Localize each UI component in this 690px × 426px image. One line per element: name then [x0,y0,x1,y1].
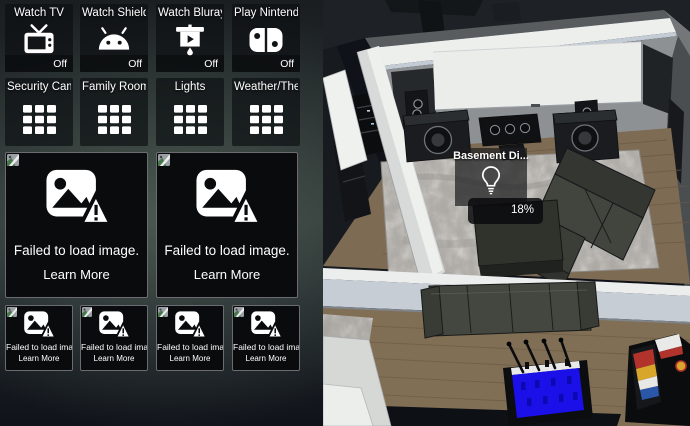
light-name: Basement Di... [441,150,541,162]
grid-icon [80,98,148,140]
learn-more-link[interactable]: Learn More [233,354,299,363]
failed-message: Failed to load image. [6,243,147,258]
image-error-icon [6,167,147,231]
tile-group-weather[interactable]: Weather/The... [232,78,300,146]
status-bar: Off [156,55,224,72]
status-text: Off [53,58,67,70]
image-error-icon [81,310,147,341]
floorplan-3d-view[interactable]: Basement Di... 18% [323,0,690,426]
status-text: Off [280,58,294,70]
status-text: Off [204,58,218,70]
failed-message: Failed to load image. [157,342,223,352]
lightbulb-icon[interactable] [479,165,503,196]
learn-more-link[interactable]: Learn More [157,267,297,282]
tile-watch-bluray[interactable]: Watch Bluray... Off [156,4,224,72]
tile-camera-feed-failed[interactable]: Failed to load image. Learn More [232,305,300,371]
status-text: Off [128,58,142,70]
failed-message: Failed to load image. [233,342,299,352]
tile-camera-feed-failed[interactable]: Failed to load image. Learn More [156,152,298,298]
failed-message: Failed to load image. [6,342,72,352]
image-error-icon [157,167,297,231]
grid-icon [5,98,73,140]
tile-camera-feed-failed[interactable]: Failed to load image. Learn More [156,305,224,371]
dimmer-slider[interactable]: 18% [468,198,543,224]
tile-play-nintendo[interactable]: Play Nintend... Off [232,4,300,72]
tile-camera-feed-failed[interactable]: Failed to load image. Learn More [5,305,73,371]
broken-image-icon [158,154,170,166]
smart-home-dashboard: Watch TV Off Watch Shield... Off Watch B… [0,0,690,426]
status-bar: Off [232,55,300,72]
projector-screen-icon [156,24,224,55]
broken-image-icon [7,154,19,166]
grid-icon [156,98,224,140]
learn-more-link[interactable]: Learn More [6,354,72,363]
tile-title: Watch TV [7,7,71,20]
arcade-machine [625,334,690,426]
second-couch [421,282,599,338]
projector-screen [433,42,641,110]
android-icon [80,24,148,55]
tile-group-family-room[interactable]: Family Room ... [80,78,148,146]
image-error-icon [157,310,223,341]
learn-more-link[interactable]: Learn More [6,267,147,282]
image-error-icon [233,310,299,341]
tile-title: Security Cam... [7,81,71,94]
tile-title: Play Nintend... [234,7,298,20]
tile-camera-feed-failed[interactable]: Failed to load image. Learn More [80,305,148,371]
learn-more-link[interactable]: Learn More [157,354,223,363]
tv-icon [5,24,73,55]
learn-more-link[interactable]: Learn More [81,354,147,363]
tile-title: Family Room ... [82,81,146,94]
image-error-icon [6,310,72,341]
tile-watch-shield[interactable]: Watch Shield... Off [80,4,148,72]
tile-title: Lights [158,81,222,94]
status-bar: Off [80,55,148,72]
dimmer-value: 18% [511,204,534,216]
tile-title: Watch Shield... [82,7,146,20]
nintendo-switch-icon [232,24,300,55]
status-bar: Off [5,55,73,72]
failed-message: Failed to load image. [81,342,147,352]
tile-group-lights[interactable]: Lights [156,78,224,146]
grid-icon [232,98,300,140]
tile-title: Watch Bluray... [158,7,222,20]
failed-message: Failed to load image. [157,243,297,258]
tile-group-security-cameras[interactable]: Security Cam... [5,78,73,146]
tile-watch-tv[interactable]: Watch TV Off [5,4,73,72]
tile-camera-feed-failed[interactable]: Failed to load image. Learn More [5,152,148,298]
tile-title: Weather/The... [234,81,298,94]
